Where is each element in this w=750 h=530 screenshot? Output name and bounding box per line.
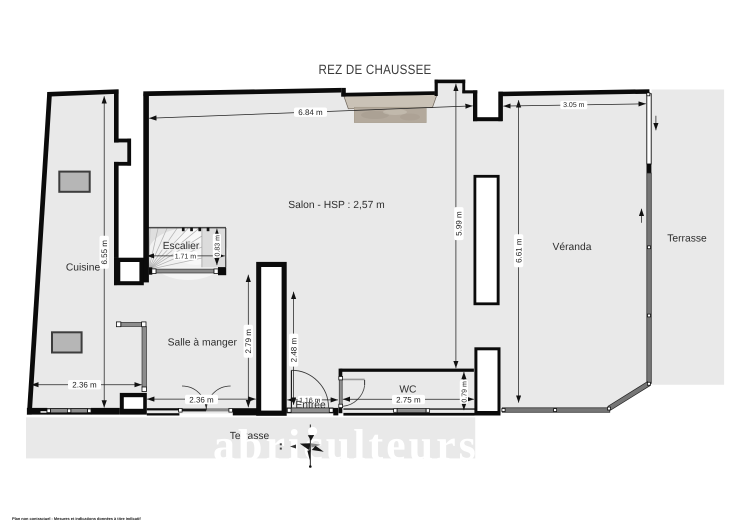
svg-text:3.05 m: 3.05 m <box>563 102 585 109</box>
svg-text:2.75 m: 2.75 m <box>396 395 421 404</box>
svg-text:Terrasse: Terrasse <box>667 233 707 244</box>
svg-text:REZ DE CHAUSSEE: REZ DE CHAUSSEE <box>319 62 432 77</box>
svg-text:2.36 m: 2.36 m <box>189 395 214 404</box>
svg-text:2.36 m: 2.36 m <box>72 381 97 390</box>
svg-text:6.84 m: 6.84 m <box>298 108 323 117</box>
svg-text:1.71 m: 1.71 m <box>175 253 197 260</box>
svg-text:Escalier: Escalier <box>163 241 200 252</box>
svg-text:0.79 m: 0.79 m <box>461 381 468 403</box>
svg-text:WC: WC <box>399 385 417 396</box>
svg-text:6.61 m: 6.61 m <box>514 238 523 263</box>
svg-text:abriculteurs: abriculteurs <box>213 421 479 470</box>
svg-text:5.99 m: 5.99 m <box>455 211 464 236</box>
svg-text:Salle à manger: Salle à manger <box>168 338 238 349</box>
svg-text:2.48 m: 2.48 m <box>289 338 298 363</box>
svg-text:2.79 m: 2.79 m <box>244 329 253 354</box>
svg-text:Entrée: Entrée <box>295 400 326 411</box>
svg-text:Cuisine: Cuisine <box>66 263 101 274</box>
svg-text:0.83 m: 0.83 m <box>214 235 221 257</box>
svg-text:Plan non contractuel - Mesures: Plan non contractuel - Mesures et indica… <box>12 516 141 521</box>
svg-text:Véranda: Véranda <box>553 242 592 253</box>
svg-text:Salon - HSP : 2,57 m: Salon - HSP : 2,57 m <box>288 200 385 211</box>
svg-text:6.55 m: 6.55 m <box>100 240 109 265</box>
